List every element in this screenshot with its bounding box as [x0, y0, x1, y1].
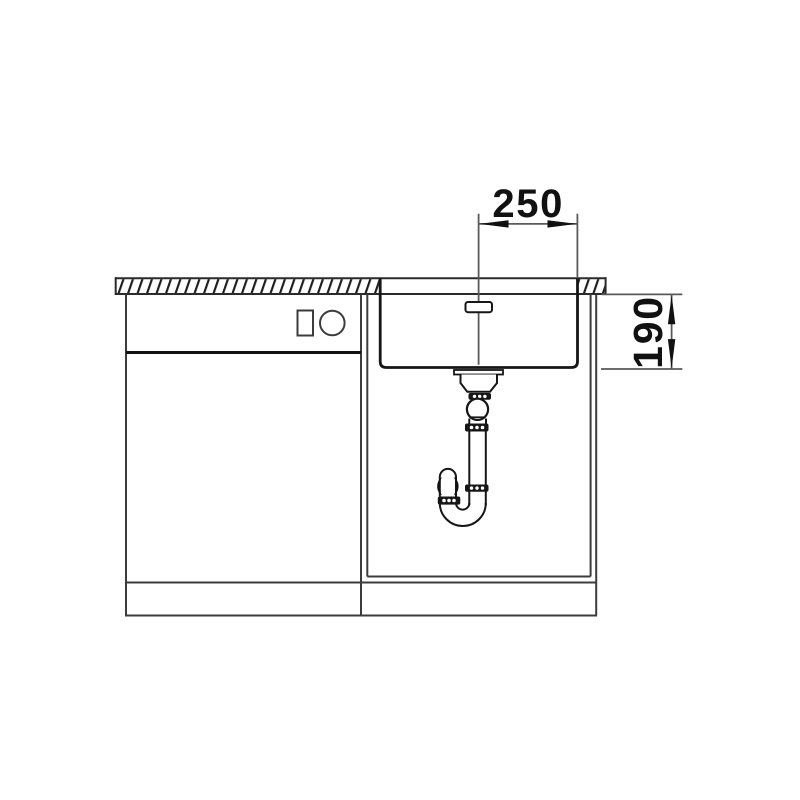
svg-text:190: 190 [625, 295, 671, 369]
svg-text:250: 250 [492, 182, 564, 226]
